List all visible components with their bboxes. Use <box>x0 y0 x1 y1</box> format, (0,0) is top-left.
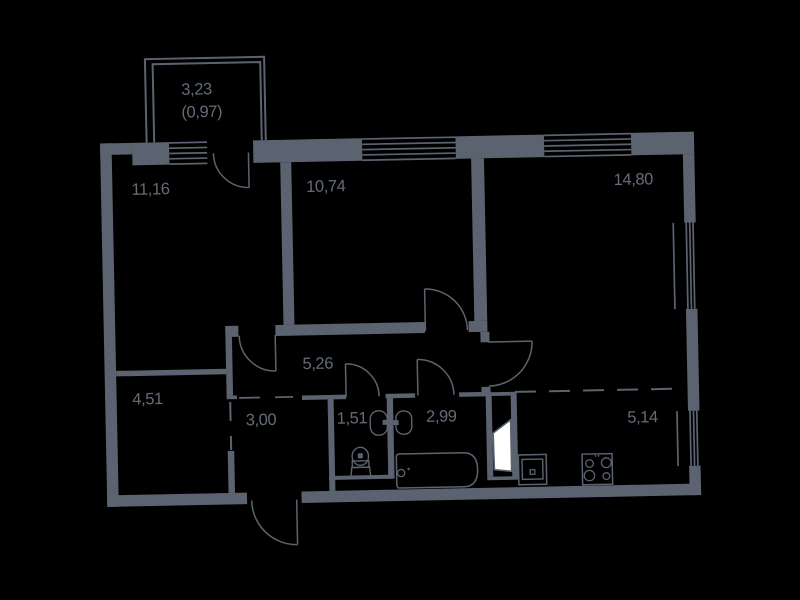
svg-text:4,51: 4,51 <box>132 390 163 409</box>
svg-text:(0,97): (0,97) <box>181 103 222 122</box>
svg-text:2,99: 2,99 <box>426 407 457 426</box>
svg-text:11,16: 11,16 <box>131 180 170 199</box>
svg-text:10,74: 10,74 <box>306 177 346 196</box>
svg-text:5,26: 5,26 <box>302 355 333 374</box>
svg-text:3,00: 3,00 <box>246 411 277 430</box>
svg-text:3,23: 3,23 <box>181 80 212 99</box>
svg-text:1,51: 1,51 <box>337 409 368 428</box>
svg-text:14,80: 14,80 <box>614 170 654 189</box>
svg-text:5,14: 5,14 <box>627 408 658 427</box>
